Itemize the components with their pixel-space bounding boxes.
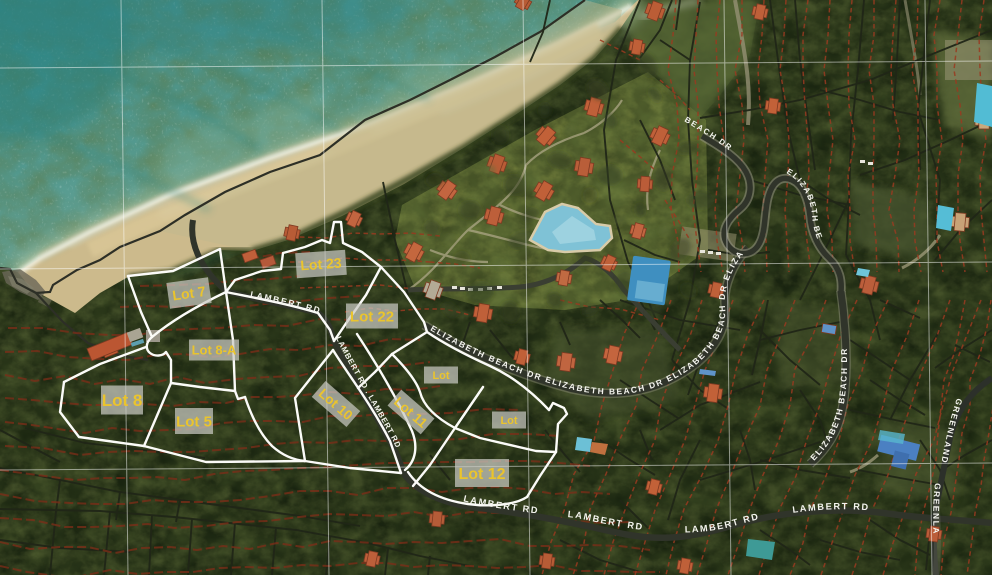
svg-text:Lot: Lot — [432, 370, 449, 382]
svg-text:Lot 22: Lot 22 — [350, 308, 394, 325]
svg-text:Lot 8: Lot 8 — [102, 391, 143, 410]
svg-text:Lot 8-A: Lot 8-A — [192, 343, 237, 358]
svg-text:GREENLA: GREENLA — [931, 483, 943, 536]
svg-text:Lot 12: Lot 12 — [458, 466, 505, 483]
svg-text:Lot: Lot — [500, 415, 517, 427]
svg-text:Lot 23: Lot 23 — [300, 255, 342, 274]
svg-text:Lot 5: Lot 5 — [176, 413, 212, 430]
